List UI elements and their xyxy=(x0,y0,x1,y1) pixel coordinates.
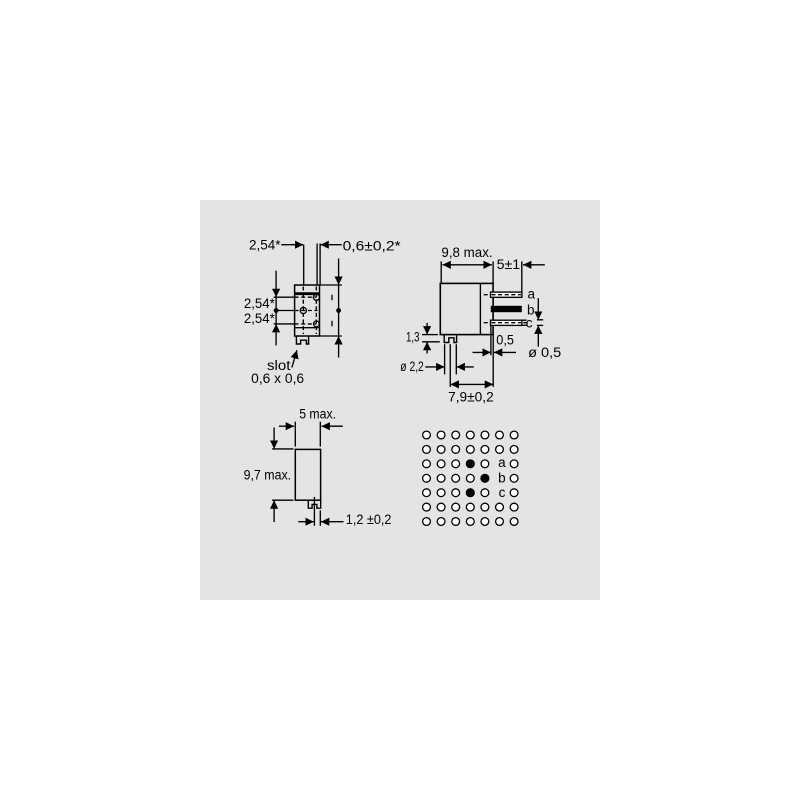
svg-text:2,54*: 2,54* xyxy=(244,296,276,311)
svg-text:c: c xyxy=(526,316,533,331)
svg-text:2,54*: 2,54* xyxy=(249,237,281,252)
svg-text:1,3: 1,3 xyxy=(406,330,420,345)
svg-text:5±1: 5±1 xyxy=(497,257,521,272)
svg-text:a: a xyxy=(498,455,506,470)
svg-text:5 max.: 5 max. xyxy=(299,406,336,421)
svg-text:0,6 x 0,6: 0,6 x 0,6 xyxy=(251,371,304,386)
svg-text:9,8 max.: 9,8 max. xyxy=(441,245,492,260)
svg-text:2,54*: 2,54* xyxy=(244,311,276,326)
svg-text:7,9±0,2: 7,9±0,2 xyxy=(448,389,494,404)
svg-text:0,5: 0,5 xyxy=(496,332,514,347)
svg-text:1,2 ±0,2: 1,2 ±0,2 xyxy=(346,512,392,527)
svg-text:9,7 max.: 9,7 max. xyxy=(244,468,292,483)
svg-text:0,6±0,2*: 0,6±0,2* xyxy=(343,239,402,254)
svg-text:ø 0,5: ø 0,5 xyxy=(528,345,561,360)
svg-text:a: a xyxy=(528,286,536,301)
svg-text:ø 2,2: ø 2,2 xyxy=(400,359,424,374)
svg-text:c: c xyxy=(499,485,506,500)
svg-text:b: b xyxy=(498,470,506,485)
